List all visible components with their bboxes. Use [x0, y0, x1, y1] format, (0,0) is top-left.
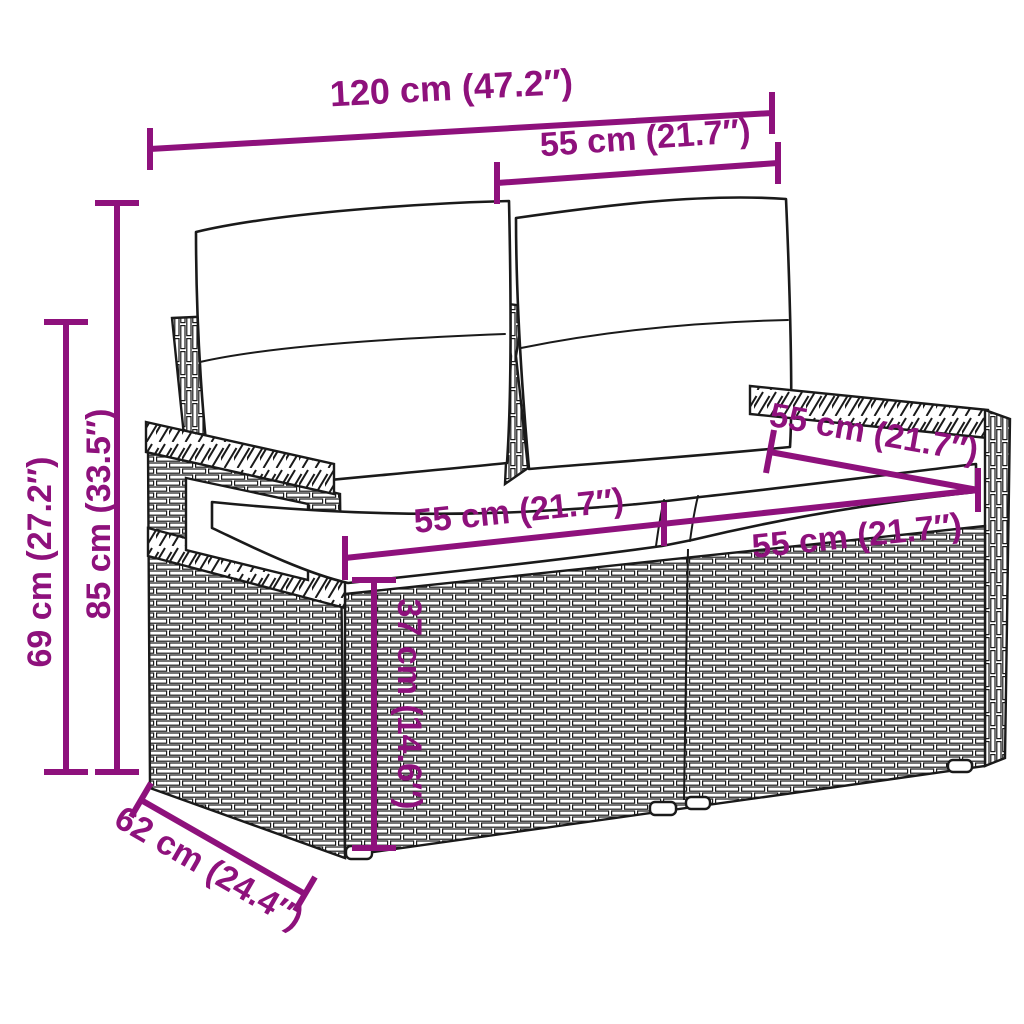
- right-side-panel: [985, 410, 1010, 766]
- dim-back-section-width: 55 cm (21.7″): [497, 112, 778, 204]
- garden-sofa-dimension-drawing: 120 cm (47.2″) 55 cm (21.7″) 85 cm (33.5…: [0, 0, 1024, 1024]
- dim-label-overall-width: 120 cm (47.2″): [329, 61, 574, 115]
- foot: [650, 802, 676, 815]
- foot: [948, 760, 972, 772]
- dim-label-seat-height: 37 cm (14.6″): [390, 599, 428, 810]
- dim-label-back-section-width: 55 cm (21.7″): [539, 112, 752, 165]
- dim-armrest-height: 69 cm (27.2″): [21, 322, 88, 772]
- foot: [686, 797, 710, 809]
- dimension-diagram: 120 cm (47.2″) 55 cm (21.7″) 85 cm (33.5…: [0, 0, 1024, 1024]
- dim-label-overall-height: 85 cm (33.5″): [80, 409, 118, 620]
- dim-overall-height: 85 cm (33.5″): [80, 203, 139, 772]
- back-cushion-right: [516, 197, 791, 469]
- dim-label-armrest-height: 69 cm (27.2″): [21, 457, 59, 668]
